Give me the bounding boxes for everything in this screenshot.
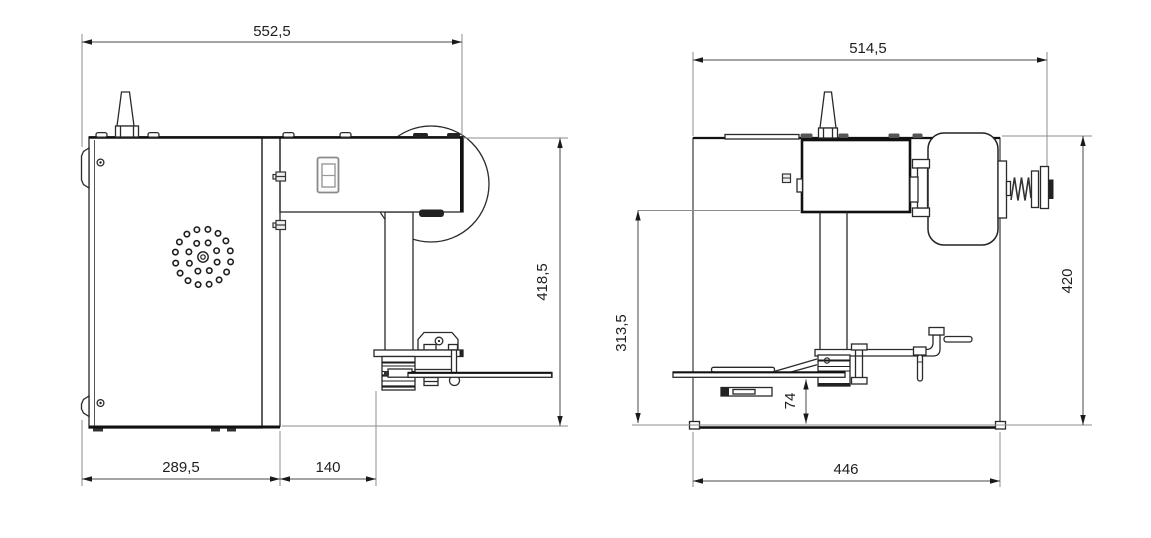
head-nut: [424, 345, 436, 351]
head-nut: [449, 345, 458, 351]
pulley-hub: [419, 210, 444, 218]
motor-housing: [928, 133, 998, 245]
bracket-end-cap: [460, 350, 464, 357]
front-view: [673, 92, 1054, 429]
i-bracket-bottom: [852, 378, 868, 385]
drawing-svg: 552,5 418,5 289,5 140: [0, 0, 1151, 538]
top-cover-plate: [725, 135, 799, 140]
clamp-nub: [384, 371, 389, 376]
spindle-shaft: [1007, 182, 1011, 196]
dim-label-front-column-height: 313,5: [613, 314, 630, 352]
dim-label-front-base-width: 446: [833, 461, 858, 478]
screw-dot: [99, 402, 101, 404]
spindle-flange: [998, 161, 1007, 218]
support-column: [385, 212, 413, 352]
machine-arm: [280, 137, 463, 212]
channel-cap: [721, 388, 729, 397]
dim-label-side-column-offset: 140: [315, 459, 340, 476]
dim-label-front-overall-height: 420: [1059, 268, 1076, 293]
foot: [93, 429, 103, 432]
dim-label-side-overall-height: 418,5: [534, 263, 551, 301]
technical-drawing-canvas: 552,5 418,5 289,5 140: [0, 0, 1151, 538]
motor-bracket-top: [913, 160, 930, 169]
spindle-end-cap: [1049, 180, 1054, 200]
needle-bar: [452, 350, 457, 373]
dim-label-side-cabinet-depth: 289,5: [162, 459, 200, 476]
control-cabinet: [89, 137, 262, 428]
mount-bracket-bottom: [82, 396, 90, 417]
side-view: [82, 92, 553, 432]
arm-side-tab: [797, 179, 803, 192]
motor-bracket-web: [918, 168, 928, 208]
mount-bracket-top: [82, 148, 90, 188]
block-base: [818, 383, 850, 387]
dim-label-front-overall-width: 514,5: [849, 40, 887, 57]
antenna-cone: [820, 92, 836, 128]
dim-label-front-table-clearance: 74: [782, 393, 799, 410]
foot: [227, 429, 236, 432]
spindle-assembly: [998, 161, 1054, 218]
spindle-disc: [1032, 171, 1039, 208]
antenna-cone: [117, 92, 134, 126]
spindle-spring: [1011, 178, 1031, 201]
antenna-base: [819, 128, 838, 138]
thread-rod-nut: [914, 347, 927, 355]
dim-label-side-overall-width: 552,5: [253, 23, 291, 40]
arm-cross-section: [802, 140, 910, 212]
motor-mount: [910, 177, 918, 202]
motor-bracket-bottom: [913, 208, 930, 217]
spindle-disc: [1041, 167, 1049, 209]
thread-rod: [918, 355, 923, 381]
screw-dot: [99, 161, 101, 163]
guide-rod: [944, 337, 972, 343]
i-bracket-top: [852, 344, 868, 350]
table-top-bar: [712, 367, 775, 372]
foot: [211, 429, 220, 432]
head-bracket-plate: [374, 350, 463, 357]
guide-arm-nut: [929, 328, 944, 336]
antenna-base: [116, 126, 139, 137]
